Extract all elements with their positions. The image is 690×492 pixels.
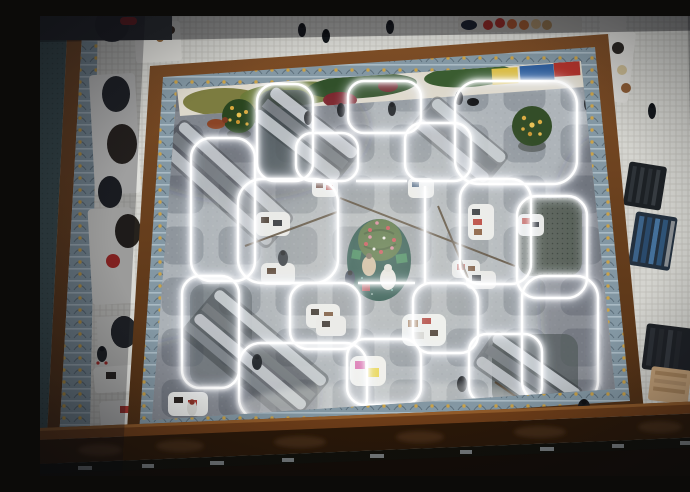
photo-department-store-atrium <box>40 16 690 476</box>
scene-canvas <box>40 16 690 476</box>
vignette <box>40 16 690 476</box>
